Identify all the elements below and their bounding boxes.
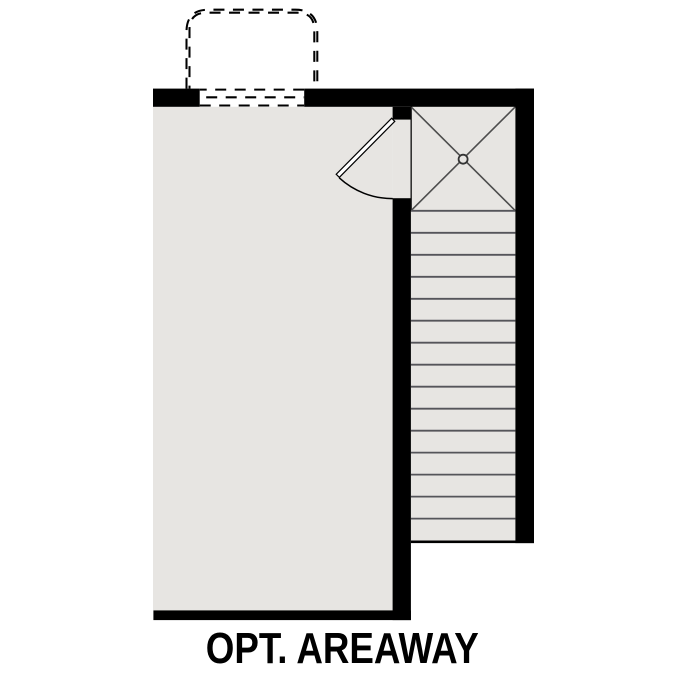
svg-text:OPT. AREAWAY: OPT. AREAWAY <box>206 625 479 673</box>
